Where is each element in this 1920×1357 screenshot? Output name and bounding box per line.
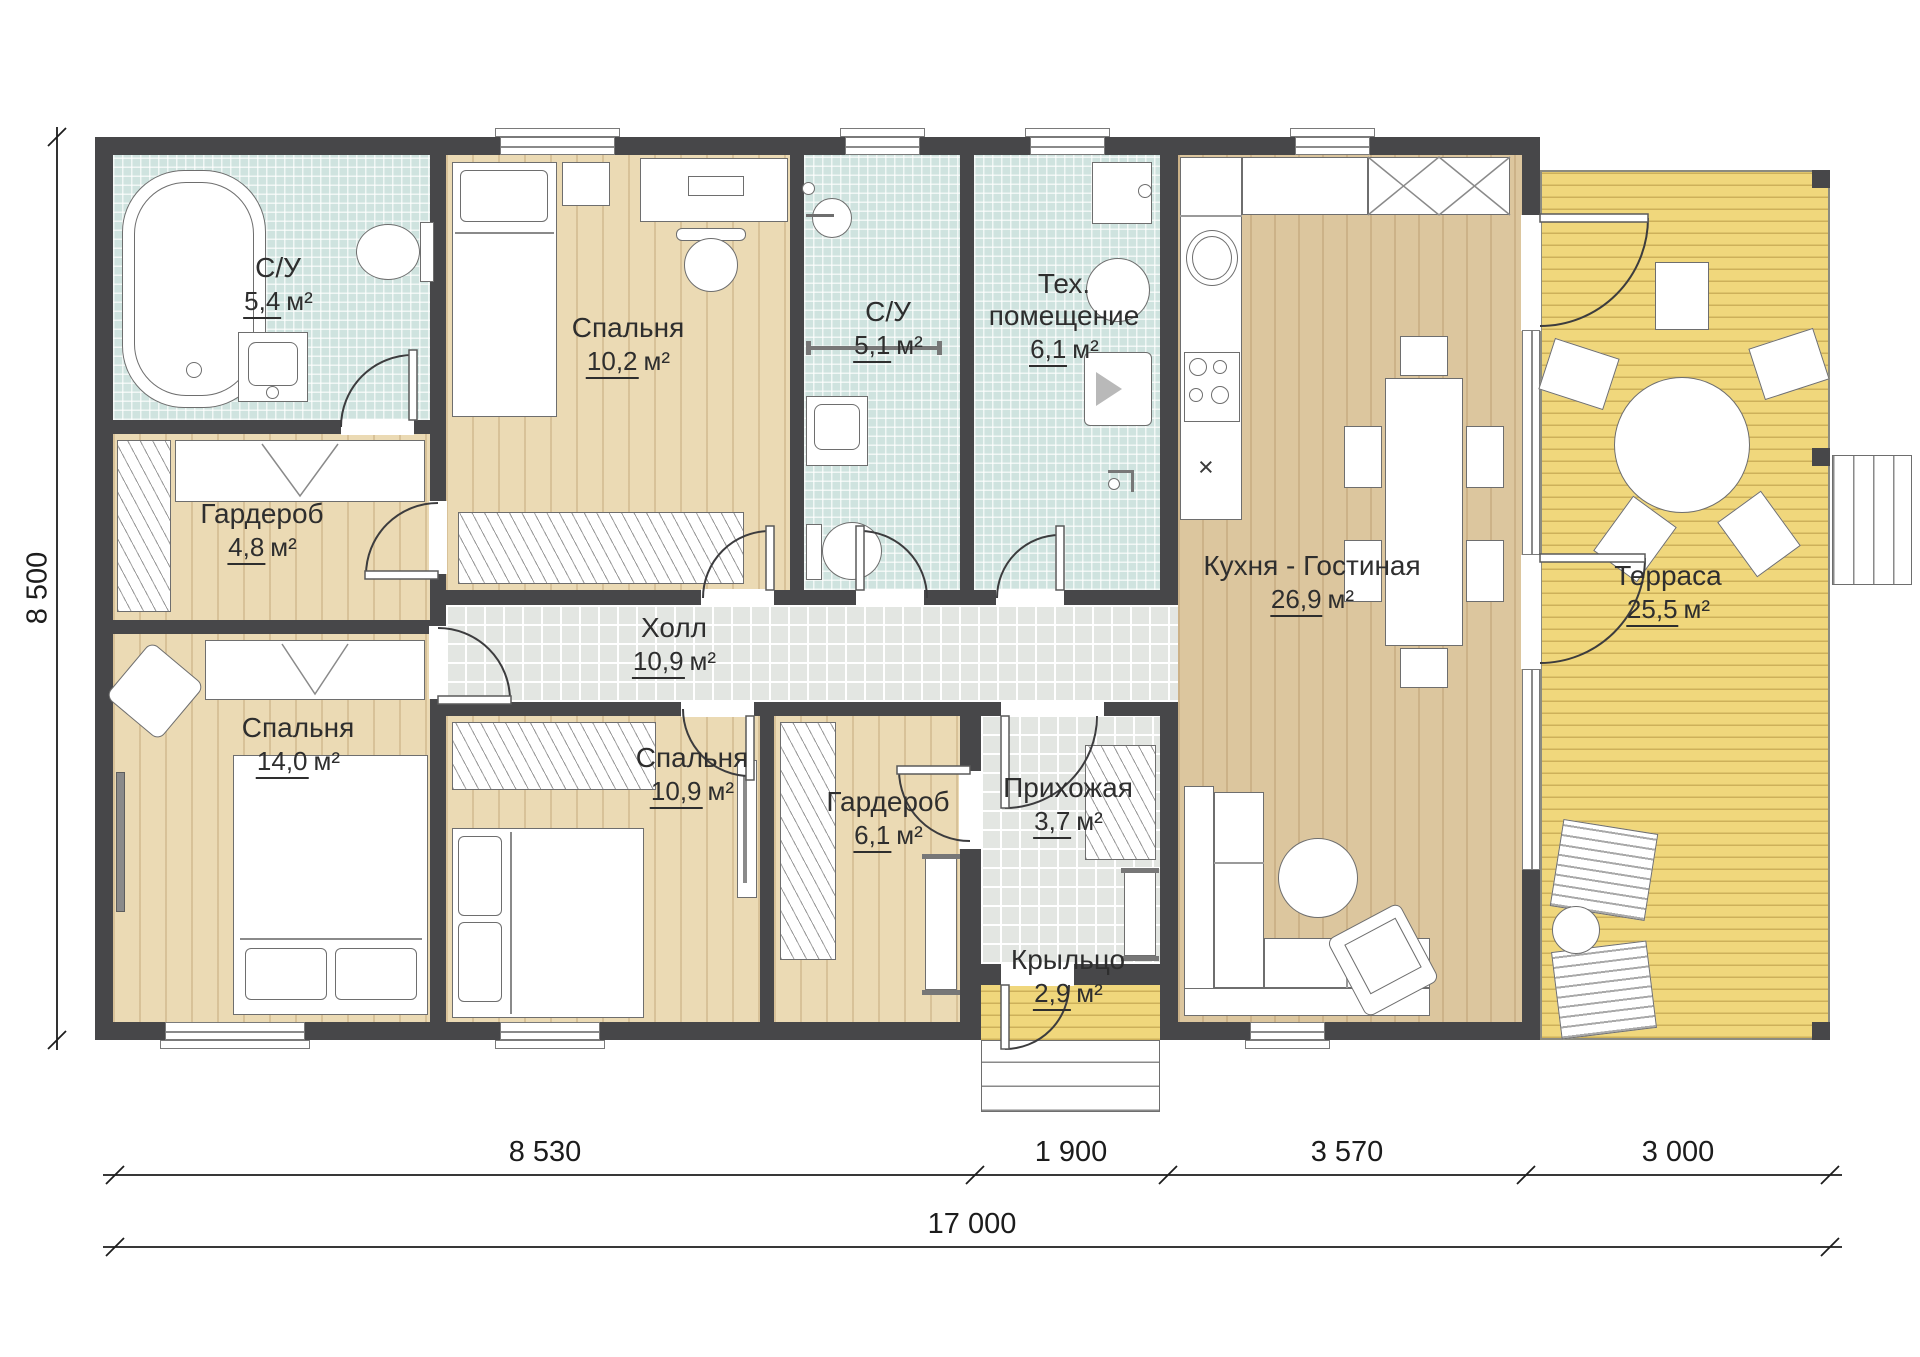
room-label-terrace: Терраса 25,5м²	[1614, 560, 1721, 625]
door-leaf	[856, 526, 864, 590]
room-label-wardrobe-2: Гардероб 6,1м²	[826, 786, 949, 851]
door-arc	[860, 531, 927, 598]
plan-linework	[0, 0, 1920, 1357]
dishwasher-marker: ×	[1198, 452, 1214, 483]
dimension-label: 3 000	[1642, 1136, 1715, 1169]
door-arc	[366, 503, 438, 575]
room-label-tech-room: Тех. помещение 6,1м²	[980, 268, 1148, 365]
door-arc	[997, 535, 1060, 598]
door-arc	[438, 628, 510, 700]
room-label-bedroom-3: Спальня 10,9м²	[636, 742, 749, 807]
door-leaf	[409, 350, 417, 420]
door-arc	[341, 355, 413, 427]
door-leaf	[1540, 214, 1648, 222]
door-leaf	[1056, 526, 1064, 590]
room-label-kitchen-living: Кухня - Гостиная 26,9м²	[1203, 550, 1420, 615]
room-label-wardrobe-1: Гардероб 4,8м²	[200, 498, 323, 563]
door-leaf	[438, 696, 511, 704]
dimension-label: 3 570	[1311, 1136, 1384, 1169]
room-label-porch: Крыльцо 2,9м²	[1011, 944, 1125, 1009]
room-label-hall: Холл 10,9м²	[632, 612, 716, 677]
door-arc	[703, 531, 770, 598]
room-label-bedroom-1: Спальня 14,0м²	[242, 712, 355, 777]
room-label-bathroom-2: С/У 5,1м²	[853, 296, 923, 361]
dimension-label-total: 17 000	[928, 1208, 1017, 1241]
room-label-bathroom-1: С/У 5,4м²	[243, 252, 313, 317]
room-label-bedroom-2: Спальня 10,2м²	[572, 312, 685, 377]
dimension-label: 1 900	[1035, 1136, 1108, 1169]
door-leaf	[766, 526, 774, 590]
dimension-label: 8 530	[509, 1136, 582, 1169]
door-arc	[1540, 218, 1648, 326]
room-label-entry: Прихожая 3,7м²	[1003, 772, 1133, 837]
door-leaf	[1001, 985, 1009, 1049]
wardrobe-v-mark	[282, 644, 348, 694]
floor-plan-canvas: ×	[0, 0, 1920, 1357]
door-leaf	[365, 571, 438, 579]
wardrobe-v-mark	[262, 444, 338, 496]
door-leaf	[897, 766, 970, 774]
dimension-label-height: 8 500	[22, 552, 55, 625]
